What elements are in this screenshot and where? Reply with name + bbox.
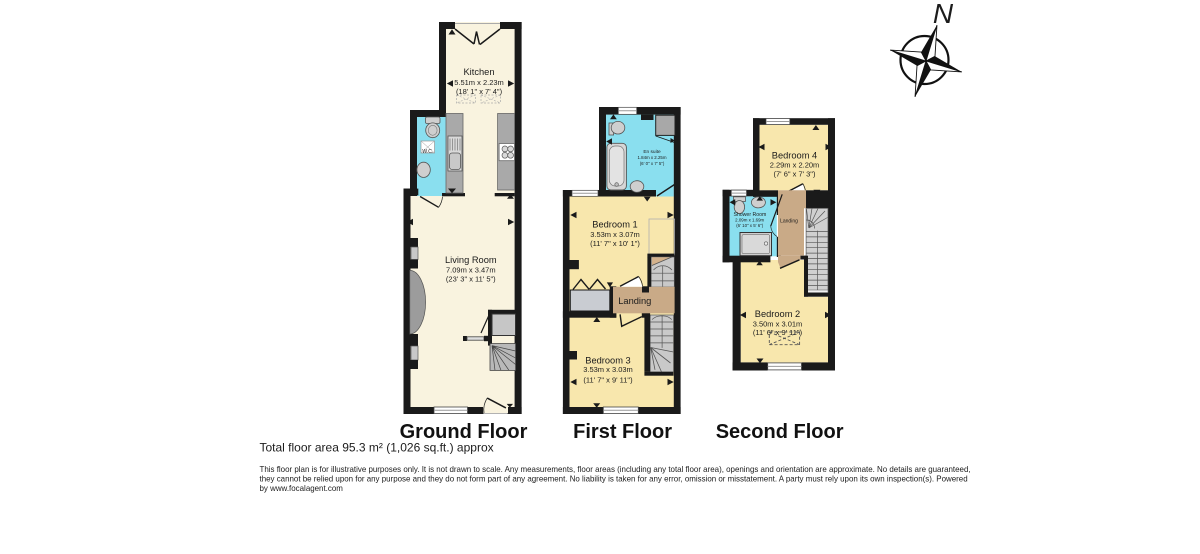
svg-text:This floor plan is for illustr: This floor plan is for illustrative purp… — [260, 465, 971, 474]
svg-text:1.84m x 2.25m: 1.84m x 2.25m — [637, 155, 666, 160]
svg-text:(11' 7" x 9' 11"): (11' 7" x 9' 11") — [583, 375, 633, 384]
svg-text:(11' 7" x 10' 1"): (11' 7" x 10' 1") — [590, 239, 640, 248]
svg-text:Total floor area 95.3 m² (1,02: Total floor area 95.3 m² (1,026 sq.ft.) … — [260, 440, 494, 454]
svg-text:Bedroom 2: Bedroom 2 — [755, 309, 800, 319]
svg-text:by www.focalagent.com: by www.focalagent.com — [260, 484, 344, 493]
svg-text:2.29m x 2.20m: 2.29m x 2.20m — [770, 161, 820, 170]
svg-text:2.09m x 1.69m: 2.09m x 1.69m — [735, 218, 764, 223]
svg-text:5.51m x 2.23m: 5.51m x 2.23m — [454, 78, 504, 87]
svg-text:7.09m x 3.47m: 7.09m x 3.47m — [446, 266, 496, 275]
svg-text:(6' 0" x 7' 5"): (6' 0" x 7' 5") — [640, 161, 665, 166]
svg-text:(23' 3" x 11' 5"): (23' 3" x 11' 5") — [446, 275, 496, 284]
svg-text:N: N — [933, 0, 954, 29]
svg-text:(6' 10" x 5' 6"): (6' 10" x 5' 6") — [736, 223, 764, 228]
svg-text:Bedroom 1: Bedroom 1 — [592, 219, 637, 229]
svg-text:(18' 1" x 7' 4"): (18' 1" x 7' 4") — [456, 87, 503, 96]
svg-text:3.53m x 3.03m: 3.53m x 3.03m — [583, 365, 633, 374]
svg-text:Second Floor: Second Floor — [716, 421, 844, 443]
svg-text:(11' 6" x 9' 11"): (11' 6" x 9' 11") — [753, 328, 803, 337]
svg-text:First Floor: First Floor — [573, 421, 672, 443]
svg-text:3.53m x 3.07m: 3.53m x 3.07m — [590, 230, 640, 239]
svg-text:Bedroom 4: Bedroom 4 — [772, 150, 817, 160]
svg-text:Kitchen: Kitchen — [463, 67, 494, 77]
svg-text:Landing: Landing — [618, 296, 651, 306]
svg-text:they cannot be relied upon for: they cannot be relied upon for any purpo… — [260, 475, 968, 484]
svg-text:Living Room: Living Room — [445, 255, 497, 265]
svg-text:W.C.: W.C. — [422, 149, 433, 155]
svg-text:(7' 6" x 7' 3"): (7' 6" x 7' 3") — [774, 170, 816, 179]
svg-text:Bedroom 3: Bedroom 3 — [585, 355, 630, 365]
svg-text:Landing: Landing — [780, 219, 798, 225]
